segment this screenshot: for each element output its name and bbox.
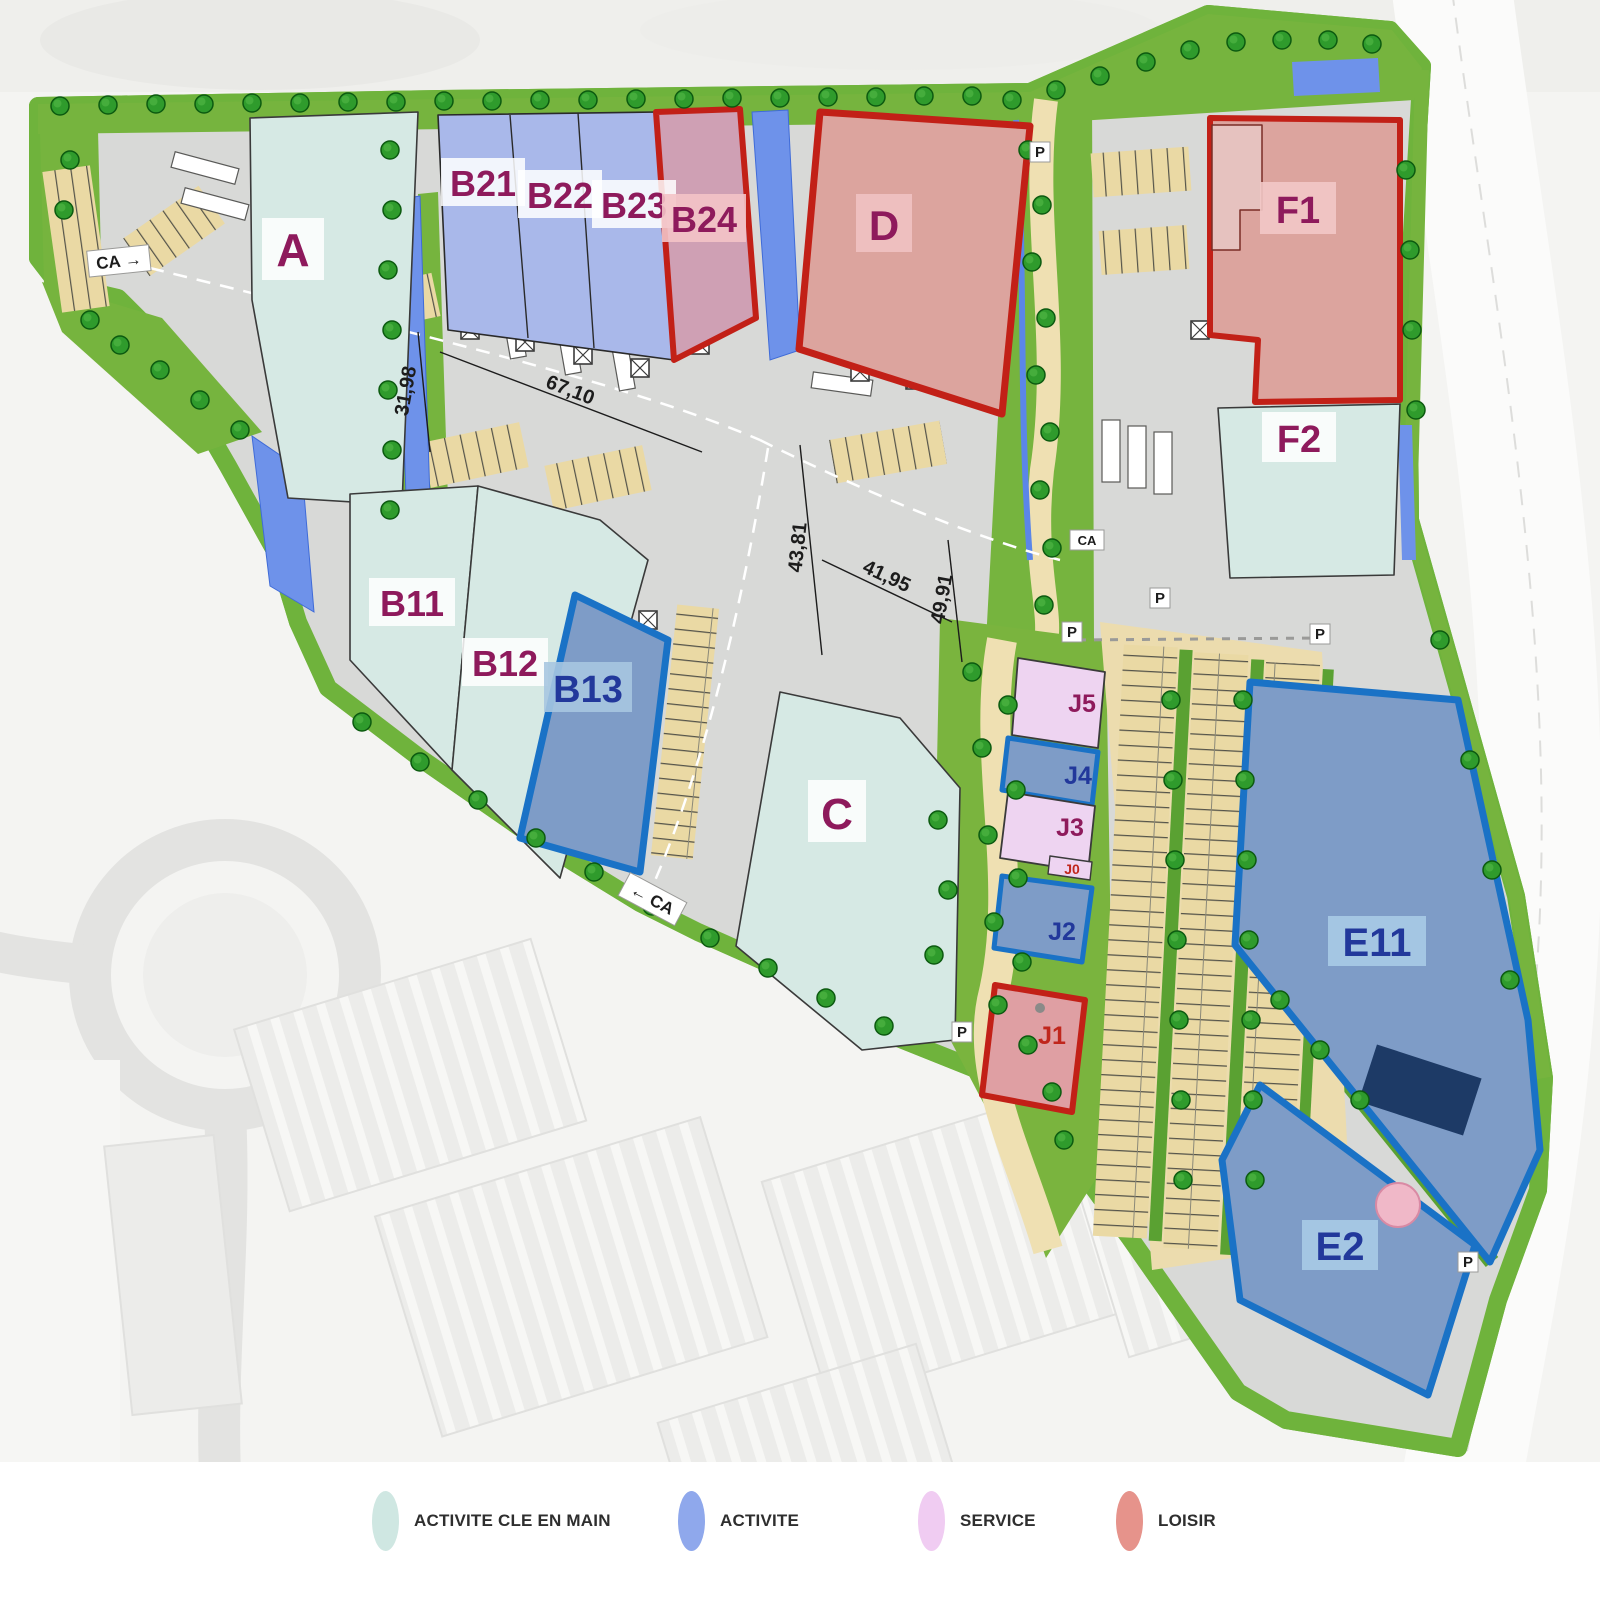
ca-marker: CA [1078, 533, 1097, 548]
legend-label: ACTIVITE [720, 1511, 799, 1531]
master-plan-drawing: 67,10 31,98 43,81 41,95 49,91 CA → ← CA … [0, 0, 1600, 1600]
lot-label-J5: J5 [1068, 690, 1096, 718]
lot-label-B12: B12 [472, 643, 538, 684]
lot-label-B21: B21 [450, 163, 516, 204]
lot-label-F2: F2 [1277, 419, 1321, 461]
lot-label-D: D [869, 202, 899, 249]
legend-item-service: SERVICE [918, 1490, 1036, 1552]
lot-label-F1: F1 [1276, 190, 1320, 232]
lot-J2 [994, 876, 1092, 962]
lot-label-J1: J1 [1038, 1022, 1066, 1050]
lot-label-C: C [821, 790, 853, 839]
lot-label-E11: E11 [1343, 921, 1412, 965]
svg-text:P: P [1155, 590, 1165, 607]
lot-label-A: A [276, 224, 309, 276]
lot-label-E2: E2 [1316, 1225, 1365, 1269]
svg-text:P: P [1315, 626, 1325, 643]
lot-label-J3: J3 [1056, 814, 1084, 842]
legend: ACTIVITE CLE EN MAIN ACTIVITE SERVICE LO… [0, 1462, 1600, 1600]
svg-text:P: P [1463, 1254, 1473, 1271]
lot-label-J4: J4 [1064, 762, 1092, 790]
lot-label-B24: B24 [671, 199, 737, 240]
lot-label-J2: J2 [1048, 918, 1076, 946]
svg-text:P: P [957, 1024, 967, 1041]
svg-text:P: P [1035, 144, 1045, 161]
lot-label-B23: B23 [601, 185, 667, 226]
legend-item-activite: ACTIVITE [678, 1490, 799, 1552]
legend-swatch-activite-cle-en-main [372, 1491, 399, 1551]
lot-label-B22: B22 [527, 175, 593, 216]
legend-item-activite-cle-en-main: ACTIVITE CLE EN MAIN [372, 1490, 611, 1552]
legend-label: SERVICE [960, 1511, 1036, 1531]
site-plan-page: 67,10 31,98 43,81 41,95 49,91 CA → ← CA … [0, 0, 1600, 1600]
legend-label: ACTIVITE CLE EN MAIN [414, 1511, 611, 1531]
legend-item-loisir: LOISIR [1116, 1490, 1216, 1552]
legend-swatch-service [918, 1491, 945, 1551]
lot-B21-B23-block [438, 112, 674, 360]
legend-label: LOISIR [1158, 1511, 1216, 1531]
lot-label-J0: J0 [1064, 861, 1080, 877]
lot-label-B13: B13 [553, 669, 623, 711]
legend-swatch-activite [678, 1491, 705, 1551]
legend-swatch-loisir [1116, 1491, 1143, 1551]
lot-label-B11: B11 [380, 583, 444, 624]
svg-text:P: P [1067, 624, 1077, 641]
